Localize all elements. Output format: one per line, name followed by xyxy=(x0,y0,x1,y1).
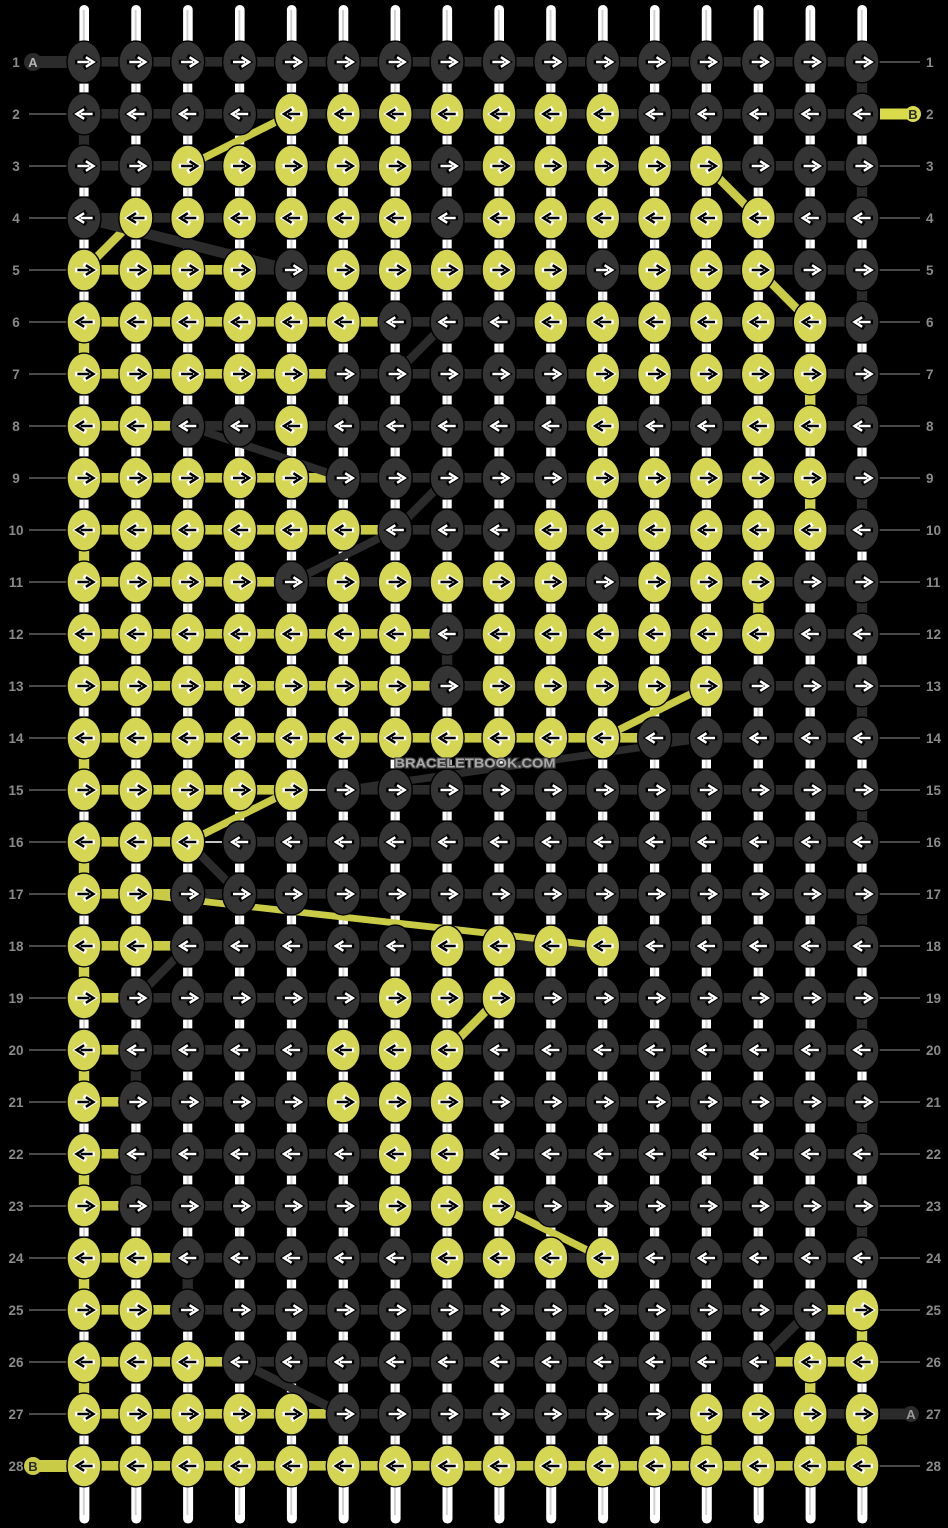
svg-text:5: 5 xyxy=(12,263,20,278)
svg-text:7: 7 xyxy=(12,367,20,382)
svg-text:6: 6 xyxy=(12,315,20,330)
svg-text:19: 19 xyxy=(8,991,23,1006)
svg-text:27: 27 xyxy=(926,1407,941,1422)
svg-text:28: 28 xyxy=(8,1459,24,1474)
svg-text:12: 12 xyxy=(926,627,941,642)
svg-text:A: A xyxy=(28,55,38,70)
svg-text:22: 22 xyxy=(8,1147,23,1162)
svg-text:27: 27 xyxy=(8,1407,23,1422)
svg-text:20: 20 xyxy=(926,1043,941,1058)
svg-text:10: 10 xyxy=(926,523,941,538)
svg-text:1: 1 xyxy=(926,55,934,70)
svg-text:A: A xyxy=(906,1407,916,1422)
svg-text:18: 18 xyxy=(8,939,24,954)
svg-text:5: 5 xyxy=(926,263,934,278)
svg-text:26: 26 xyxy=(926,1355,942,1370)
svg-text:19: 19 xyxy=(926,991,941,1006)
svg-text:11: 11 xyxy=(9,575,24,590)
svg-text:8: 8 xyxy=(12,419,20,434)
svg-text:15: 15 xyxy=(8,783,24,798)
svg-text:18: 18 xyxy=(926,939,942,954)
svg-text:16: 16 xyxy=(926,835,942,850)
svg-text:24: 24 xyxy=(926,1251,942,1266)
svg-text:17: 17 xyxy=(8,887,23,902)
svg-text:22: 22 xyxy=(926,1147,941,1162)
svg-text:2: 2 xyxy=(12,107,20,122)
svg-text:4: 4 xyxy=(12,211,20,226)
svg-text:13: 13 xyxy=(8,679,24,694)
svg-text:20: 20 xyxy=(8,1043,23,1058)
svg-text:16: 16 xyxy=(8,835,24,850)
svg-text:23: 23 xyxy=(8,1199,24,1214)
svg-text:11: 11 xyxy=(926,575,941,590)
svg-text:14: 14 xyxy=(8,731,24,746)
svg-text:7: 7 xyxy=(926,367,934,382)
svg-text:9: 9 xyxy=(926,471,934,486)
svg-text:17: 17 xyxy=(926,887,941,902)
svg-text:25: 25 xyxy=(926,1303,942,1318)
svg-text:13: 13 xyxy=(926,679,942,694)
svg-text:1: 1 xyxy=(12,55,20,70)
svg-text:24: 24 xyxy=(8,1251,24,1266)
svg-text:9: 9 xyxy=(12,471,20,486)
svg-text:28: 28 xyxy=(926,1459,942,1474)
svg-text:4: 4 xyxy=(926,211,934,226)
svg-text:25: 25 xyxy=(8,1303,24,1318)
svg-text:3: 3 xyxy=(12,159,20,174)
svg-text:2: 2 xyxy=(926,107,934,122)
svg-text:8: 8 xyxy=(926,419,934,434)
svg-text:12: 12 xyxy=(8,627,23,642)
svg-text:B: B xyxy=(908,107,917,122)
svg-text:21: 21 xyxy=(926,1095,942,1110)
svg-text:3: 3 xyxy=(926,159,934,174)
svg-text:10: 10 xyxy=(8,523,23,538)
svg-text:B: B xyxy=(28,1459,37,1474)
svg-text:26: 26 xyxy=(8,1355,24,1370)
svg-text:BRACELETBOOK.COM: BRACELETBOOK.COM xyxy=(395,756,556,771)
svg-text:6: 6 xyxy=(926,315,934,330)
svg-text:21: 21 xyxy=(8,1095,24,1110)
svg-text:15: 15 xyxy=(926,783,942,798)
svg-text:14: 14 xyxy=(926,731,942,746)
svg-text:23: 23 xyxy=(926,1199,942,1214)
